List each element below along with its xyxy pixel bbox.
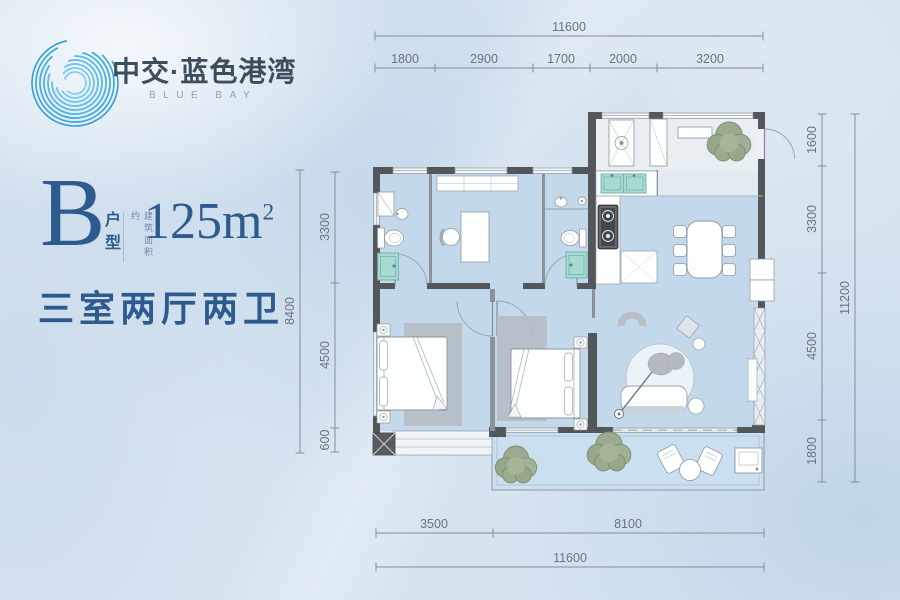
shower-head-icon (578, 197, 586, 205)
dim-top-seg-1: 2900 (470, 52, 498, 66)
bay-window (393, 431, 492, 455)
stove-icon (598, 205, 618, 249)
shower-icon (378, 192, 394, 216)
dim-top-total: 11600 (552, 20, 586, 34)
dim-right-seg-3: 1800 (805, 437, 819, 465)
toilet-icon (561, 229, 586, 247)
dim-left-seg-2: 600 (318, 430, 332, 451)
vanity-sink-icon (566, 252, 587, 278)
nightstand (574, 419, 587, 430)
ac-unit (735, 448, 762, 473)
dim-right-seg-2: 4500 (805, 332, 819, 360)
wall-sink-icon (396, 209, 408, 220)
dim-left-seg-0: 3300 (318, 213, 332, 241)
bed-icon (508, 349, 580, 418)
window-shelf (748, 359, 757, 401)
dim-right-segments-line (818, 114, 827, 482)
nightstand (574, 337, 587, 348)
wardrobe (437, 176, 518, 191)
floor-plan: 11600 1800 2900 1700 2000 3200 8400 3300… (0, 0, 900, 600)
entry-bench (678, 127, 712, 138)
flue-shaft (373, 433, 395, 455)
vanity-sink-icon (378, 253, 399, 280)
dim-left-total: 8400 (283, 297, 297, 325)
dim-bottom-seg-1: 8100 (614, 517, 642, 531)
dim-right-seg-1: 3300 (805, 205, 819, 233)
dim-top-seg-3: 2000 (609, 52, 637, 66)
bed-icon (377, 337, 447, 410)
kitchen-sink-icon (601, 174, 646, 193)
desk (461, 212, 489, 262)
hall-cabinet (650, 119, 667, 166)
entry-door-arc (765, 129, 795, 159)
fridge (621, 251, 657, 283)
dim-top-seg-2: 1700 (547, 52, 575, 66)
nightstand (377, 411, 390, 423)
dim-top-seg-0: 1800 (391, 52, 419, 66)
dim-bottom-seg-0: 3500 (420, 517, 448, 531)
dining-table-icon (687, 221, 722, 278)
floorplan-page: 中交·蓝色港湾 BLUE BAY B 户型 建筑面积约 125m2 三室两厅两卫 (0, 0, 900, 600)
dim-bottom-total: 11600 (553, 551, 587, 565)
washer-icon (609, 120, 634, 166)
balcony-table (680, 460, 701, 481)
dim-right-total: 11200 (838, 281, 852, 315)
dim-top-seg-4: 3200 (696, 52, 724, 66)
wall-cabinet (750, 259, 774, 301)
wall-sink-icon (555, 197, 567, 207)
dim-right-seg-0: 1600 (805, 126, 819, 154)
dim-left-seg-1: 4500 (318, 341, 332, 369)
nightstand (377, 324, 390, 336)
